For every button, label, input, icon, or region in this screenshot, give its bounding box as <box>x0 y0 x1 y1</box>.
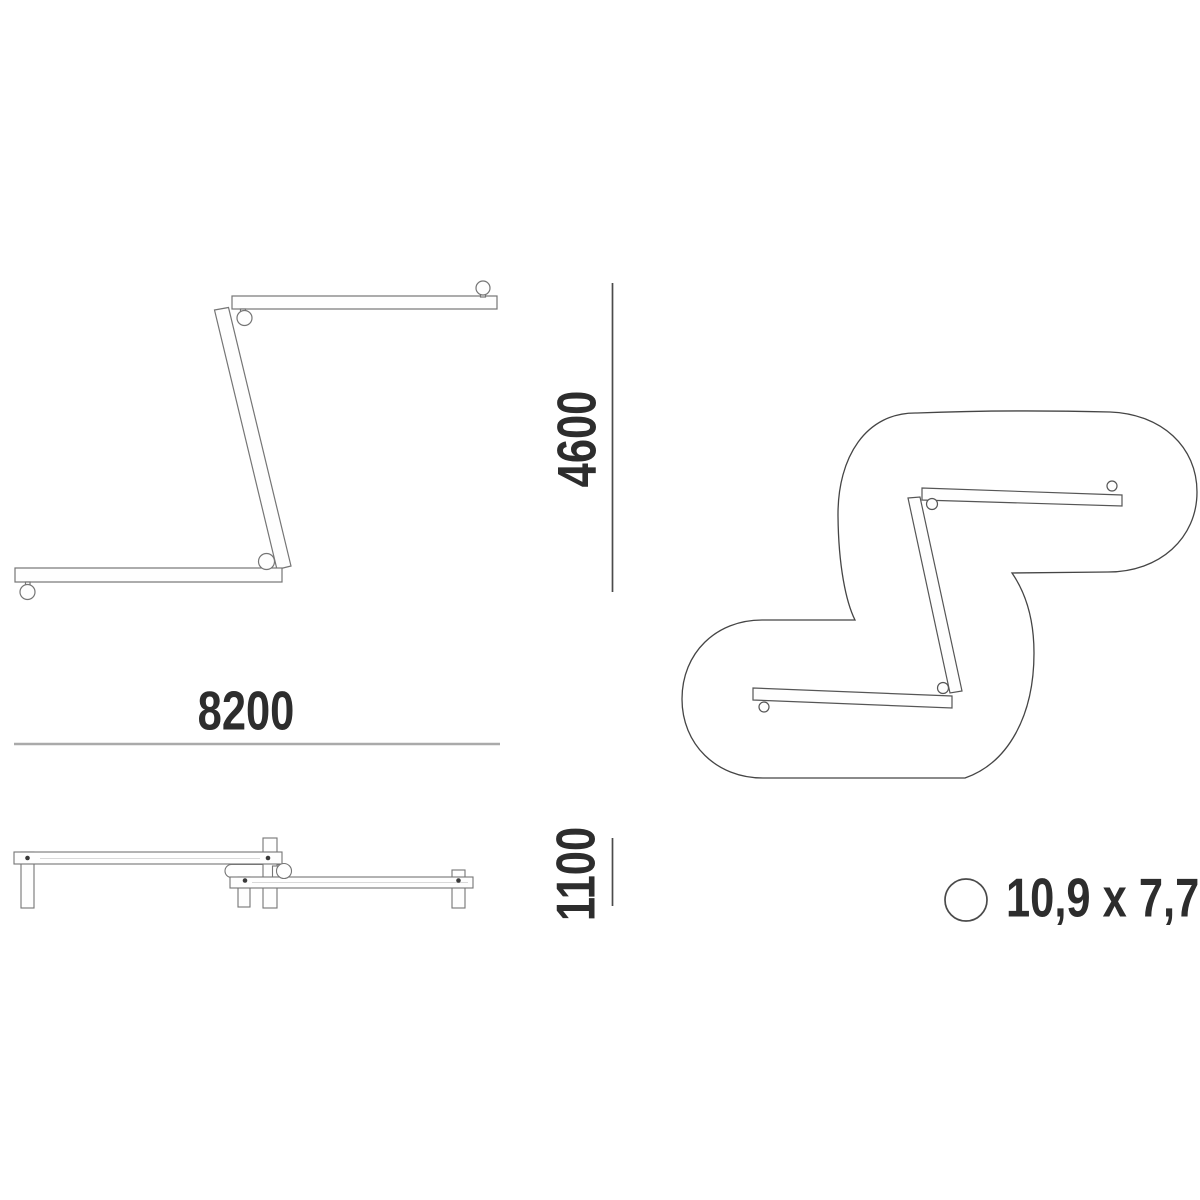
side-right-post <box>452 870 465 908</box>
plan-fixture <box>753 481 1122 712</box>
technical-drawing-canvas <box>0 0 1200 1200</box>
front-bottom-hinge-circle <box>259 554 275 570</box>
profile-circle-icon <box>945 879 987 921</box>
profile-size-label: 10,9 x 7,7 <box>1006 871 1199 926</box>
width-dim-label: 8200 <box>198 684 295 739</box>
front-top-cable-circle <box>476 281 490 295</box>
front-top-arm <box>232 296 497 309</box>
side-view-drawing <box>14 838 473 908</box>
dimension-diagram: 4600 8200 1100 10,9 x 7,7 <box>0 0 1200 1200</box>
height-dim-label: 4600 <box>550 391 605 488</box>
screw-dot <box>243 878 248 883</box>
front-bottom-arm <box>15 568 282 582</box>
plan-top-arm <box>922 488 1122 506</box>
screw-dot <box>456 878 461 883</box>
front-diagonal-arm <box>215 308 292 570</box>
plan-top-hinge-circle <box>927 499 938 510</box>
front-view-drawing <box>15 281 497 600</box>
dimension-lines <box>14 283 613 906</box>
screw-dot <box>266 856 271 861</box>
front-bottom-cable-circle <box>20 585 35 600</box>
front-top-hinge-circle <box>237 311 252 326</box>
plan-bottom-arm <box>753 688 952 708</box>
plan-bottom-hinge-circle <box>938 683 949 694</box>
side-hinge-circle <box>277 864 292 879</box>
top-view-drawing <box>682 411 1197 778</box>
depth-dim-label: 1100 <box>549 827 604 921</box>
screw-dot <box>25 856 30 861</box>
plan-vertical-arm <box>908 497 962 693</box>
plan-bottom-cable-circle <box>759 702 769 712</box>
plan-top-cable-circle <box>1107 481 1117 491</box>
